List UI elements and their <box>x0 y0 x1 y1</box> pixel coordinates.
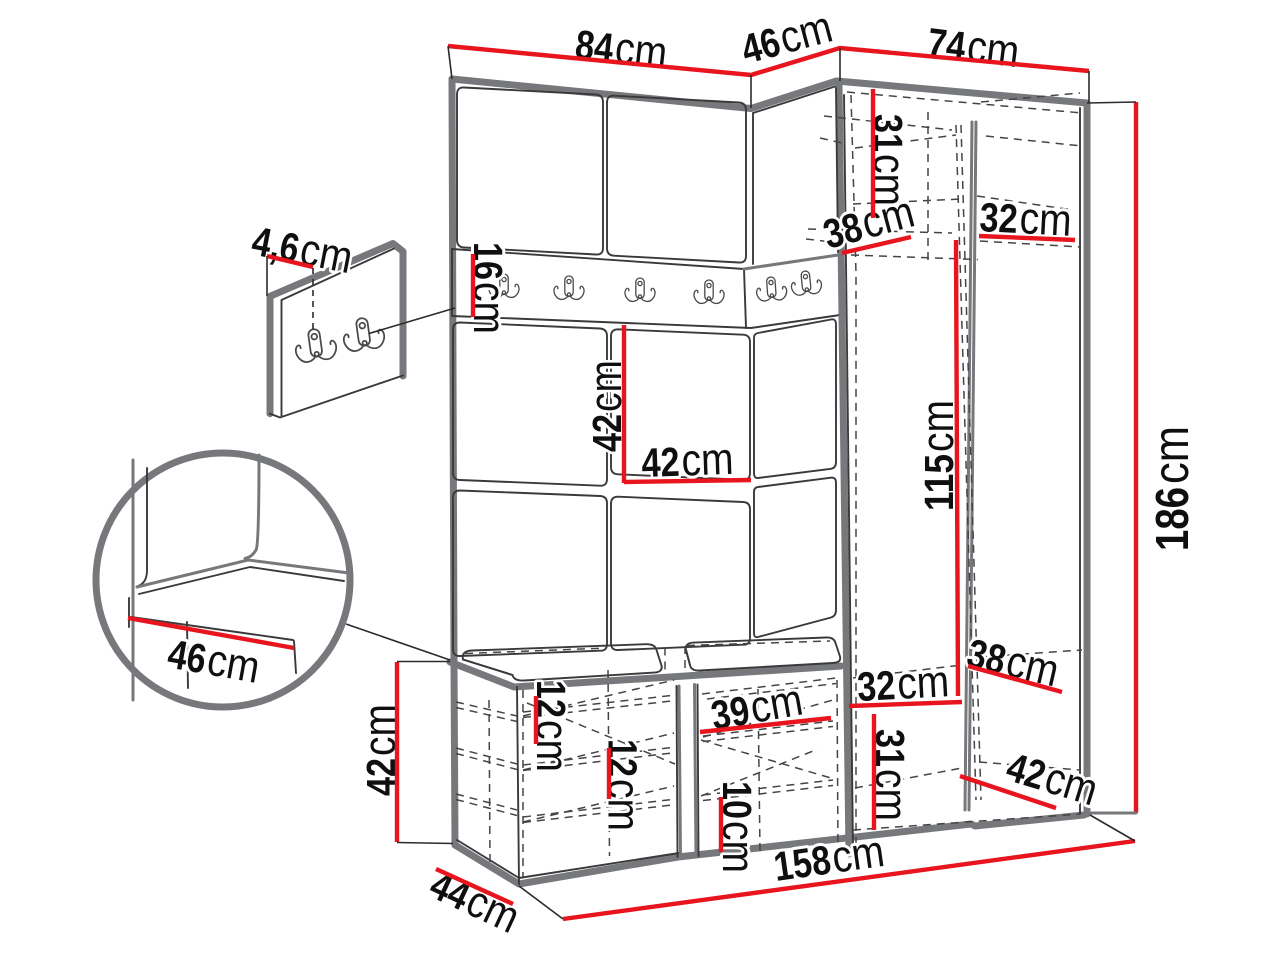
svg-text:84: 84 <box>573 21 616 71</box>
svg-text:46: 46 <box>164 631 209 683</box>
svg-text:186: 186 <box>1146 487 1198 551</box>
svg-text:cm: cm <box>613 22 670 79</box>
svg-text:74: 74 <box>925 19 968 69</box>
svg-text:cm: cm <box>1143 426 1199 484</box>
svg-text:12: 12 <box>600 739 646 777</box>
svg-text:cm: cm <box>599 779 650 831</box>
svg-text:42: 42 <box>641 439 681 486</box>
svg-text:cm: cm <box>296 223 357 283</box>
svg-text:cm: cm <box>964 20 1022 77</box>
svg-text:cm: cm <box>681 433 735 486</box>
